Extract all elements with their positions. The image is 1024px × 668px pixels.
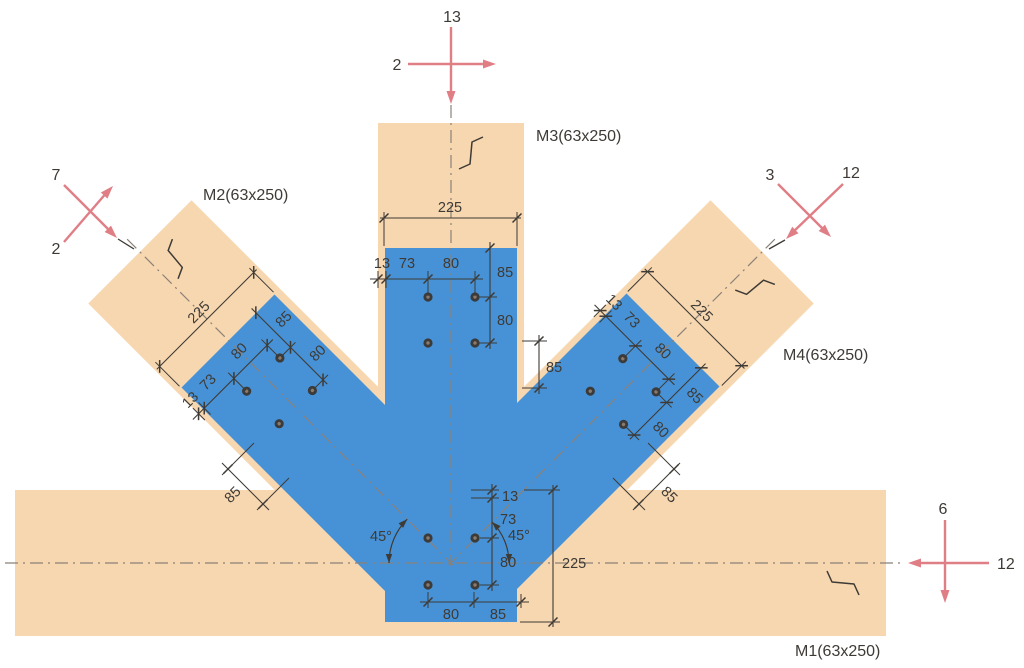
- arrow-down-icon: [447, 91, 456, 104]
- dim-label: 45°: [508, 528, 530, 544]
- dim-label: 13: [502, 489, 518, 505]
- label-member-m3: M3(63x250): [536, 128, 621, 145]
- bolt-icon: [423, 533, 432, 542]
- force-arrows-top: 13 2: [393, 9, 496, 104]
- force-label: 7: [52, 167, 61, 184]
- dim-label: 80: [443, 607, 459, 623]
- force-label: 13: [443, 9, 461, 26]
- dim-label: 85: [546, 360, 562, 376]
- label-member-m4: M4(63x250): [783, 347, 868, 364]
- dim-label: 73: [500, 512, 516, 528]
- bolt-icon: [423, 580, 432, 589]
- force-label: 12: [842, 165, 860, 182]
- arrow-left-icon: [908, 559, 921, 568]
- dim-label: 45°: [370, 529, 392, 545]
- force-label: 3: [766, 167, 775, 184]
- dim-label: 225: [562, 556, 586, 572]
- truss-joint-drawing: 225 13 73 80 85 8: [0, 0, 1024, 668]
- bolt-icon: [470, 533, 479, 542]
- force-label: 2: [393, 57, 402, 74]
- label-member-m2: M2(63x250): [203, 187, 288, 204]
- bolt-icon: [470, 580, 479, 589]
- arrow-down-icon: [941, 590, 950, 603]
- force-arrows-top-left: 7 2: [52, 167, 134, 258]
- drawing-canvas: 225 13 73 80 85 8: [0, 0, 1024, 668]
- dim-label: 85: [490, 607, 506, 623]
- arrow-right-icon: [483, 60, 496, 69]
- force-arrows-right: 6 12: [908, 501, 1015, 603]
- force-label: 6: [939, 501, 948, 518]
- force-label: 2: [52, 241, 61, 258]
- force-arrows-top-right: 3 12: [766, 165, 860, 249]
- force-label: 12: [997, 556, 1015, 573]
- label-member-m1: M1(63x250): [795, 643, 880, 660]
